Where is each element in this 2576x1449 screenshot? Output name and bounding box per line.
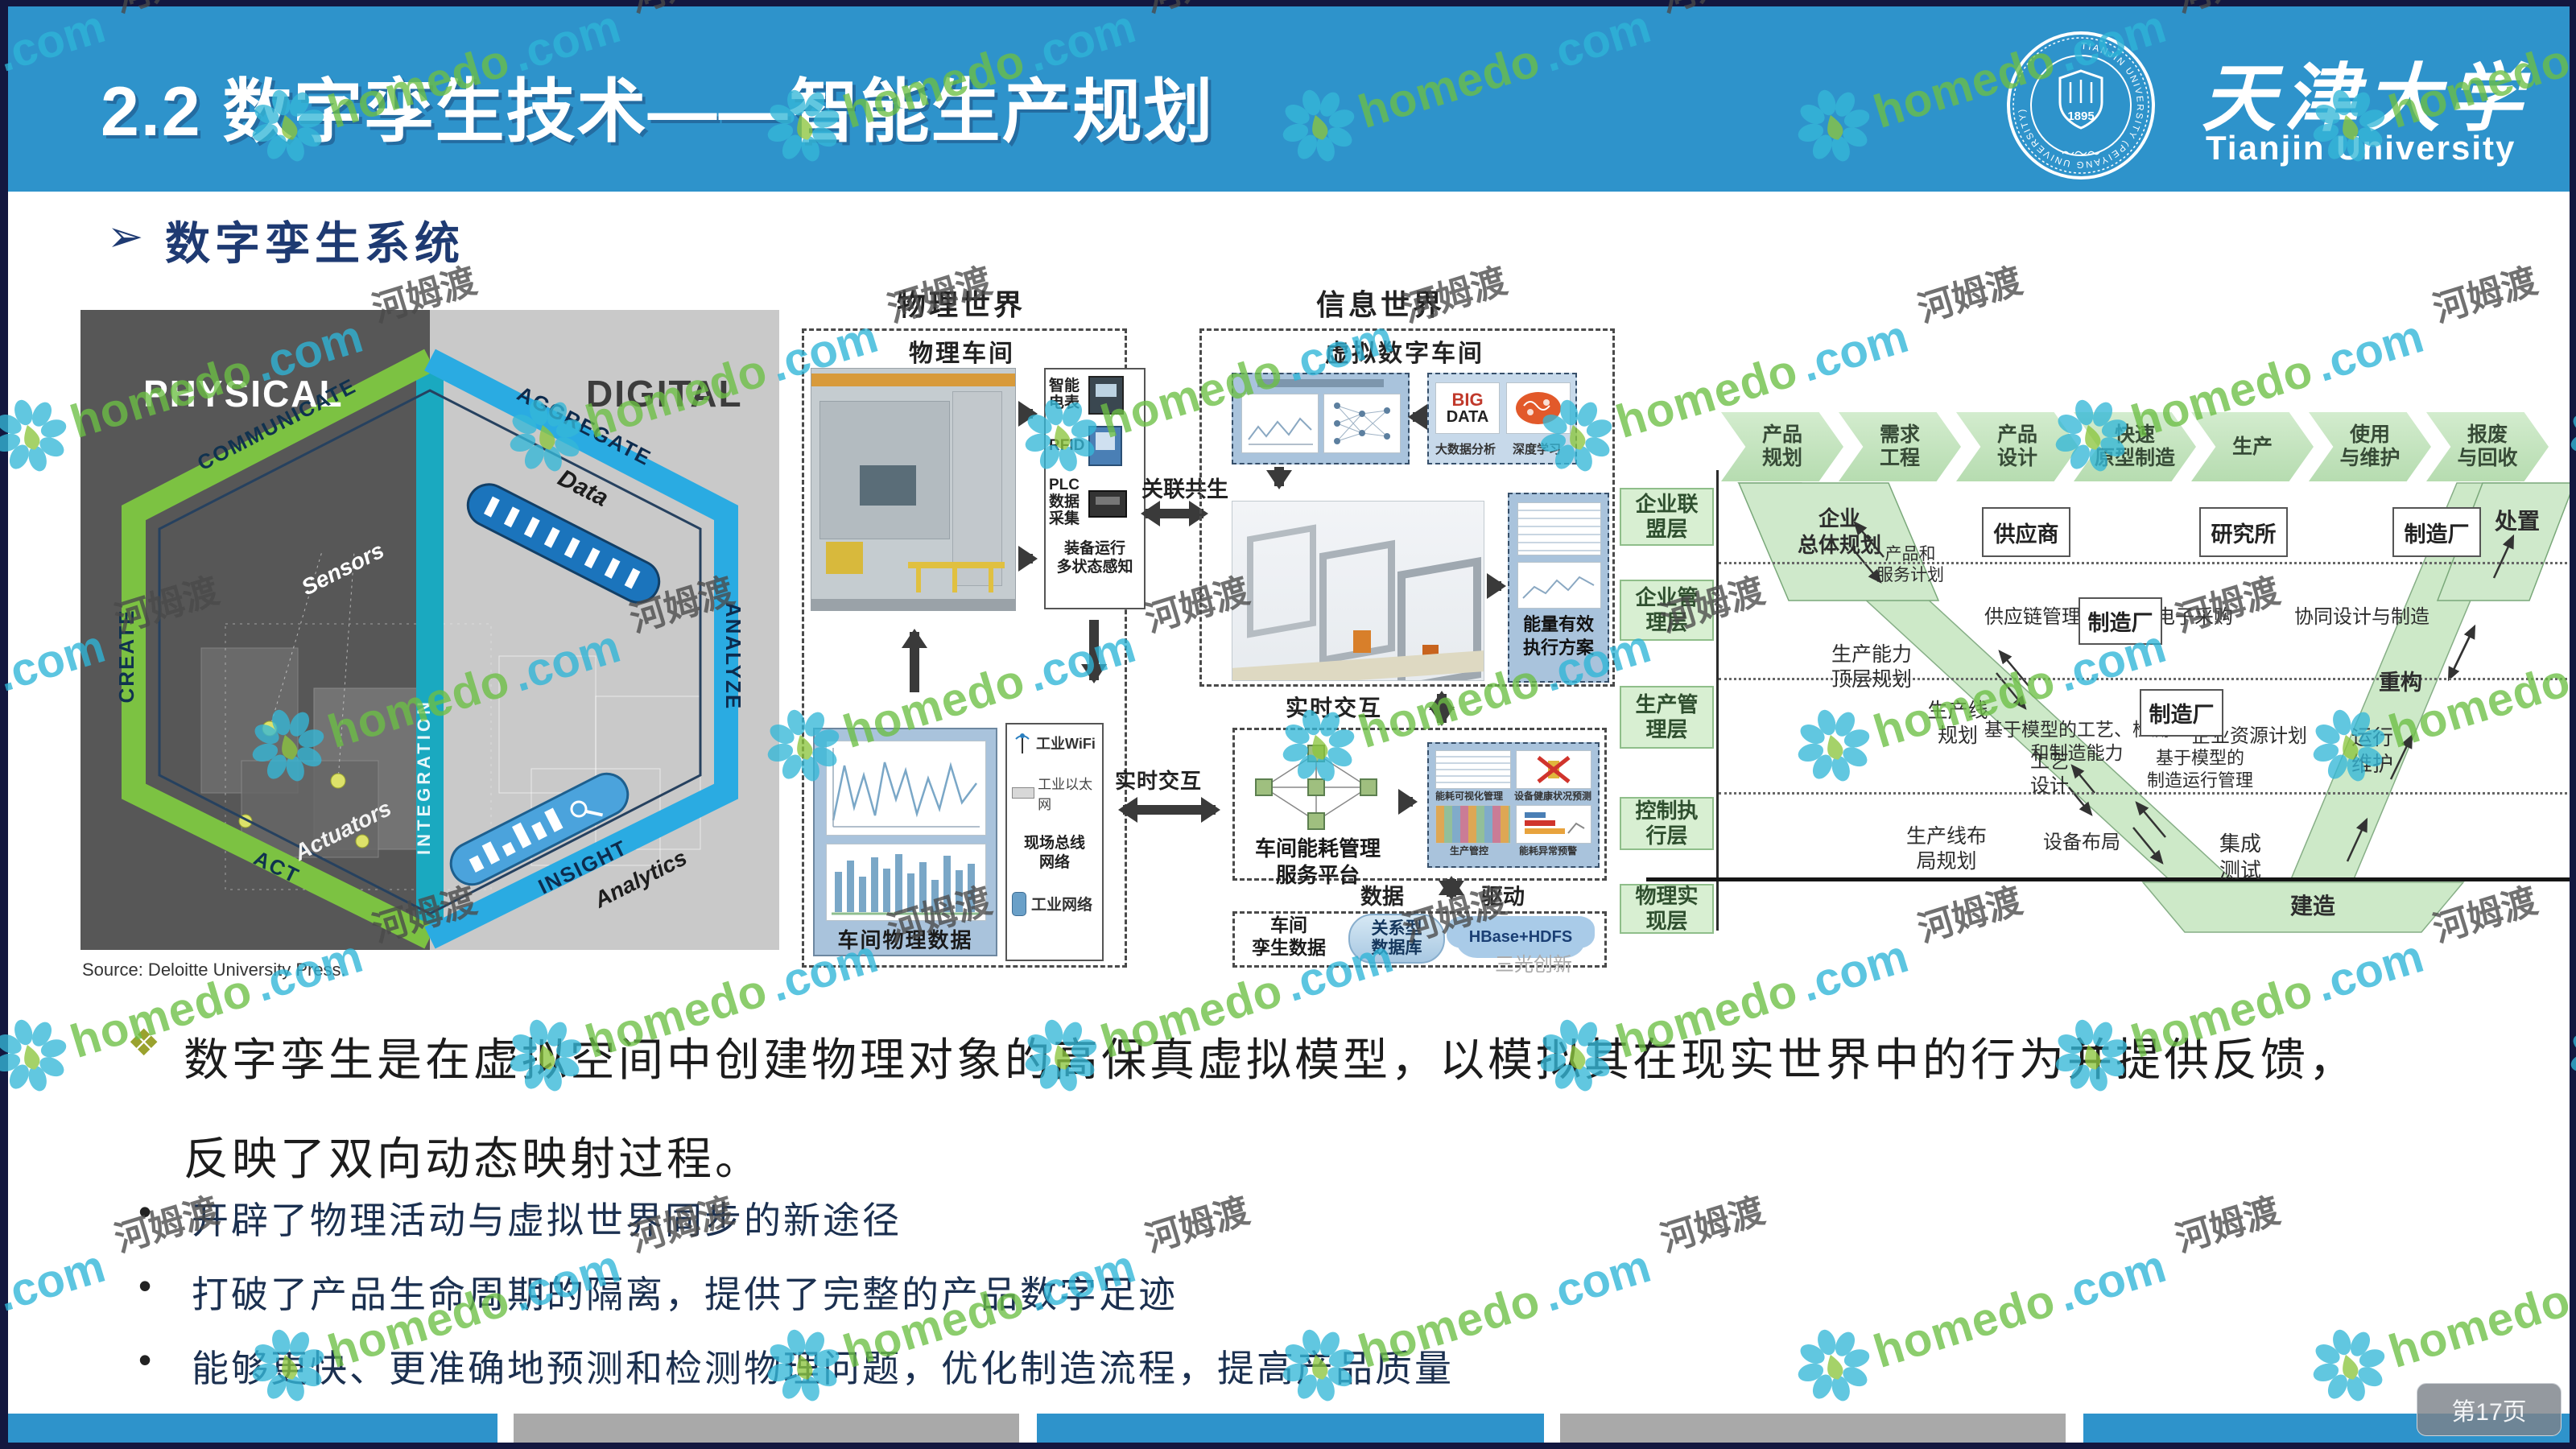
photo-to-sensing-arrow2 [1018, 554, 1033, 563]
layer-enterprise-mgmt: 企业管 理层 [1620, 580, 1714, 641]
factory-box-3: 制造厂 [2140, 689, 2223, 737]
thumb2-caption: 设备健康状况预测 [1514, 789, 1591, 803]
layout-planning: 生产线布 局规划 [1898, 824, 1995, 875]
physical-world-title: 物理世界 [871, 282, 1051, 324]
machine-tower [952, 391, 1002, 586]
network-caption: 工业网络 [1031, 893, 1092, 914]
model-mom: 基于模型的 制造运行管理 [2116, 747, 2285, 791]
v-model-figure: 产品 规划 需求 工程 产品 设计 快速 原型制造 生产 使用 与维护 报废 与… [1618, 386, 2576, 982]
thumb3-caption: 生产管控 [1450, 844, 1488, 857]
layer-enterprise-alliance: 企业联 盟层 [1620, 488, 1714, 546]
homedo-flower-icon [0, 390, 76, 482]
layer-divider [1719, 562, 2572, 564]
physdata-to-photo-arrow [910, 632, 919, 692]
bigdata-caption1: 大数据分析 [1435, 440, 1496, 457]
info-world-title: 信息世界 [1288, 282, 1473, 324]
neural-net-thumb [1323, 394, 1401, 453]
bus-device-icon [1012, 892, 1026, 916]
brain-thumb [1506, 382, 1571, 434]
bigdata-thumb: BIG DATA [1435, 382, 1500, 434]
bigdata-to-model-arrow [1413, 412, 1424, 422]
collab-design-label: 协同设计与制造 [2294, 605, 2429, 630]
big-word: BIG [1451, 391, 1483, 409]
eprocurement-label: 电子采购 [2156, 605, 2233, 630]
slide-title: 2.2 数字孪生技术——智能生产规划 [101, 55, 1214, 155]
platform-to-apps-arrow [1398, 797, 1413, 807]
dispose-label: 处置 [2481, 507, 2553, 535]
section-heading: 数字孪生系统 [165, 208, 464, 273]
realtime-h-label: 实时交互 [1115, 765, 1202, 795]
fieldbus-label: 现场总线 网络 [1012, 834, 1097, 873]
mini-monitor-thumb [1241, 394, 1319, 453]
gantt-thumb [1435, 805, 1511, 844]
frame-top [0, 0, 2576, 6]
realtime-v-label: 实时交互 [1286, 691, 1382, 723]
industrial-network-box: 工业WiFi 工业以太网 现场总线 网络 工业网络 [1005, 723, 1104, 961]
panel-caption-bar [1257, 379, 1384, 387]
operation-maintain: 运行 维护 [2336, 724, 2409, 777]
page-number-badge: 第17页 [2417, 1383, 2562, 1436]
university-seal-icon: TIANJIN UNIVERSITY (PEIYANG UNIVERSITY) … [2004, 29, 2157, 182]
rail-post [989, 568, 993, 592]
svg-text:〜〜〜: 〜〜〜 [2062, 147, 2100, 161]
realtime-v-arrow [1437, 694, 1447, 723]
bar-chart-thumb [826, 844, 986, 921]
watermark-brand: homedo [2383, 1273, 2576, 1379]
homedo-flower-icon [1788, 1319, 1880, 1412]
process-design: 工艺 设计 [2017, 750, 2082, 799]
report-thumb [1517, 502, 1601, 555]
rfid-label: RFID [1049, 437, 1084, 455]
supplier-box: 供应商 [1982, 507, 2070, 557]
bigdata-panel: BIG DATA 大数据分析 深度学习 [1427, 373, 1577, 464]
paragraph-bullet-icon: ❖ [127, 1021, 160, 1064]
curve-thumb [1517, 562, 1601, 609]
vendor-mark: 三光创新 [1495, 948, 1572, 976]
heading-arrow-icon: ➢ [107, 211, 143, 262]
hdfs-label: HBase+HDFS [1469, 928, 1572, 947]
floor [811, 599, 1015, 610]
model-state-panel [1232, 373, 1410, 464]
line-planning: 生产线 规划 [1918, 699, 1998, 749]
filmstrip-segment [514, 1414, 1019, 1443]
build-label: 建造 [2268, 892, 2357, 920]
ethernet-label: 工业以太网 [1038, 773, 1097, 813]
institute-box: 研究所 [2199, 507, 2288, 557]
bullet-item-1: 开辟了物理活动与虚拟世界同步的新途径 [192, 1191, 902, 1245]
page-number: 第17页 [2451, 1392, 2526, 1427]
safety-rail [908, 562, 1005, 568]
list-bullet: • [138, 1264, 151, 1307]
seal-year: 1895 [2067, 109, 2094, 123]
rail-post [916, 568, 921, 592]
model-to-3d-arrow [1274, 467, 1284, 486]
phys-data-panel: 车间物理数据 [813, 728, 997, 956]
robot-arm [826, 542, 863, 574]
list-bullet: • [138, 1190, 151, 1233]
layer-physical-impl: 物理实 现层 [1620, 884, 1714, 934]
university-name-en: Tianjin University [2206, 129, 2516, 167]
homedo-watermark: homedo.com 河姆渡 [1788, 1190, 2302, 1411]
watermark-brand: homedo [1868, 1273, 2062, 1379]
twin-data-caption: 车间 孪生数据 [1244, 914, 1334, 959]
watermark-tld: .com [1537, 1239, 1657, 1323]
photo-to-sensing-arrow [1018, 409, 1033, 419]
homedo-flower-icon [2303, 1319, 2396, 1412]
list-bullet: • [138, 1338, 151, 1381]
platform-network-graph [1248, 742, 1385, 832]
header-bar: 2.2 数字孪生技术——智能生产规划 TIANJIN UNIVERSITY (P… [8, 6, 2576, 192]
data-label: 数据 [1360, 879, 1404, 910]
3d-to-energy-arrow [1488, 581, 1501, 591]
integration-test: 集成 测试 [2204, 831, 2277, 883]
watermark-tld: .com [0, 1239, 111, 1323]
robot-dot [1353, 630, 1371, 653]
sensing-caption: 装备运行 多状态感知 [1049, 539, 1141, 578]
watermark-tld: .com [2310, 309, 2429, 393]
phys-data-caption: 车间物理数据 [815, 924, 996, 954]
homedo-watermark: homedo.com 河姆渡 [2303, 1190, 2576, 1411]
analyze-label: ANALYZE [721, 602, 745, 710]
watermark-cn: 河姆渡 [2426, 252, 2543, 332]
energy-bars-thumb [1516, 805, 1591, 844]
smart-meter-icon [1088, 376, 1124, 415]
figure-source: Source: Deloitte University Press. [82, 960, 346, 980]
scm-label: 供应链管理 [1984, 605, 2081, 630]
filmstrip-segment [0, 1414, 497, 1443]
data-word: DATA [1447, 409, 1489, 425]
gantry-frame [1247, 524, 1316, 638]
machine-window [860, 465, 916, 506]
bullet-item-2: 打破了产品生命周期的隔离，提供了完整的产品数字足迹 [192, 1265, 1178, 1319]
homedo-flower-icon [0, 1009, 76, 1102]
plc-label: PLC 数据 采集 [1049, 477, 1084, 528]
physical-workshop-photo [811, 368, 1016, 611]
virtual-shop-label: 虚拟数字车间 [1199, 333, 1610, 369]
layer-divider [1719, 792, 2572, 795]
rfid-icon [1088, 426, 1122, 466]
smart-meter-label: 智能电表 [1049, 378, 1084, 412]
bigdata-caption2: 深度学习 [1513, 440, 1561, 457]
line-chart-thumb [826, 741, 986, 836]
digital-label: DIGITAL [586, 373, 743, 415]
filmstrip-segment [1560, 1414, 2066, 1443]
router-icon [1012, 787, 1034, 799]
equipment-layout: 设备布局 [2043, 831, 2120, 855]
watermark-tld: .com [2052, 1239, 2172, 1323]
sensing-to-network-arrow [1089, 620, 1099, 680]
rebuild-label: 重构 [2379, 670, 2422, 697]
definition-paragraph: 数字孪生是在虚拟空间中创建物理对象的高保真虚拟模型，以模拟其在现实世界中的行为并… [184, 1010, 2389, 1208]
create-label: CREATE [114, 609, 138, 704]
relational-db-shape: 关系型 数据库 [1348, 914, 1445, 964]
table-thumb [1435, 750, 1511, 789]
frame-bottom [0, 1443, 2576, 1449]
watermark-cn: 河姆渡 [1911, 252, 2028, 332]
layer-production-mgmt: 生产管 理层 [1620, 686, 1714, 749]
digital-twin-flow-figure: 物理世界 信息世界 物理车间 智能电表 RFID [793, 282, 1622, 966]
robot-alert-thumb [1516, 750, 1591, 789]
product-service-plan: 产品和 服务计划 [1866, 544, 1955, 587]
crane-beam [811, 374, 1015, 386]
physical-shop-label: 物理车间 [802, 333, 1122, 369]
digital-twin-hexagon-figure: PHYSICAL DIGITAL COMMUNICATE AGGREGATE C… [80, 310, 779, 950]
physical-boundary-line [1646, 877, 2574, 881]
capacity-planning: 生产能力 顶层规划 [1819, 642, 1924, 693]
presentation-slide: 2.2 数字孪生技术——智能生产规划 TIANJIN UNIVERSITY (P… [0, 0, 2576, 1449]
factory-box-2: 制造厂 [2079, 597, 2162, 645]
virtual-workshop-3d [1232, 501, 1484, 681]
integration-label: INTEGRATION [414, 699, 434, 855]
wifi-label: 工业WiFi [1036, 733, 1096, 753]
platform-apps-panel: 能耗可视化管理 设备健康状况预测 生产管控 能耗异常预警 [1427, 742, 1600, 868]
thumb4-caption: 能耗异常预警 [1519, 844, 1577, 857]
axis-line [1716, 470, 1719, 931]
rail-post [952, 568, 957, 592]
data-drive-arrow [1447, 879, 1456, 897]
antenna-icon [1012, 731, 1033, 755]
worlds-link-arrow [1146, 509, 1203, 518]
watermark-tld: .com [1794, 309, 1914, 393]
layer-control-exec: 控制执 行层 [1620, 797, 1714, 850]
plc-icon [1088, 490, 1127, 518]
filmstrip-segment [1037, 1414, 1544, 1443]
energy-plan-panel: 能量有效 执行方案 [1508, 493, 1609, 683]
frame-left [0, 0, 8, 1449]
thumb1-caption: 能耗可视化管理 [1435, 789, 1503, 803]
frame-right [2570, 0, 2576, 1449]
sensing-box: 智能电表 RFID PLC 数据 采集 装备运行 多状态感知 [1044, 368, 1146, 609]
energy-plan-caption: 能量有效 执行方案 [1509, 613, 1608, 659]
drive-label: 驱动 [1481, 879, 1525, 910]
bullet-item-3: 能够更快、更准确地预测和检测物理问题，优化制造流程，提高产品质量 [192, 1340, 1454, 1393]
factory-box-1: 制造厂 [2392, 507, 2481, 557]
realtime-h-arrow [1123, 805, 1216, 815]
